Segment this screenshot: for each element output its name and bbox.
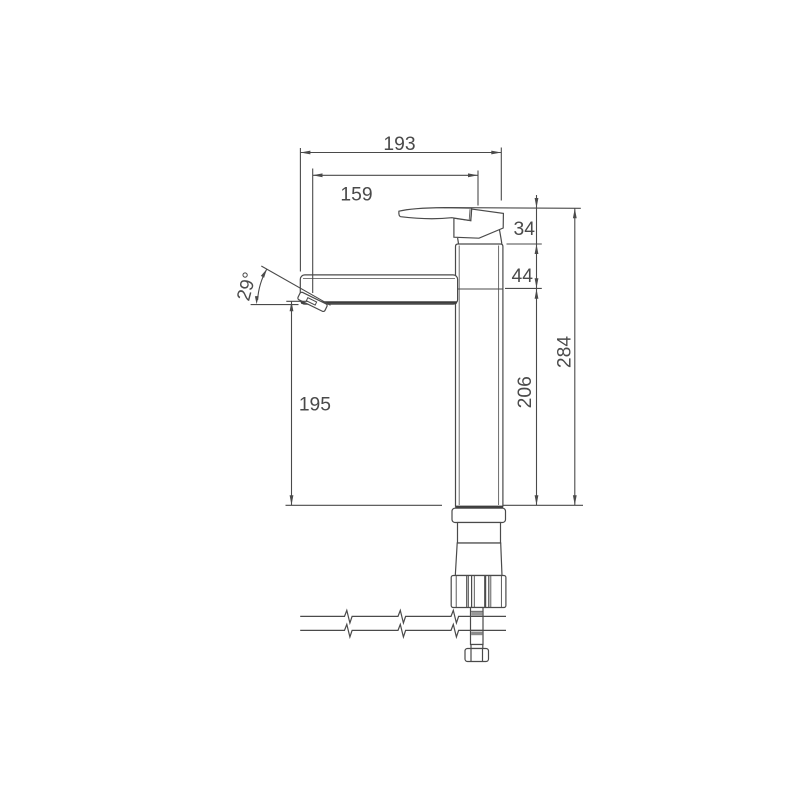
svg-text:206: 206: [515, 376, 536, 408]
svg-text:195: 195: [299, 395, 331, 416]
svg-text:159: 159: [340, 184, 372, 205]
svg-text:284: 284: [554, 336, 575, 368]
svg-text:34: 34: [514, 219, 536, 240]
svg-text:44: 44: [512, 266, 534, 287]
svg-text:193: 193: [383, 134, 415, 155]
